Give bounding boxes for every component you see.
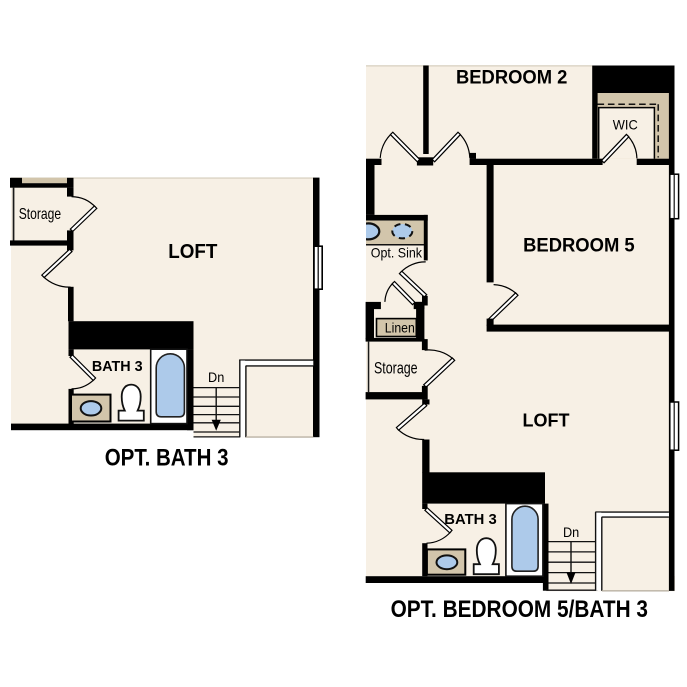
svg-text:OPT. BATH 3: OPT. BATH 3	[105, 444, 229, 471]
svg-text:Linen: Linen	[385, 321, 415, 336]
svg-text:BATH 3: BATH 3	[92, 358, 143, 375]
svg-text:LOFT: LOFT	[523, 410, 571, 431]
svg-text:Dn: Dn	[208, 370, 224, 385]
svg-text:BEDROOM 2: BEDROOM 2	[456, 68, 567, 89]
svg-text:Storage: Storage	[374, 358, 418, 377]
svg-text:WIC: WIC	[613, 117, 638, 133]
svg-text:Opt. Sink: Opt. Sink	[371, 244, 423, 260]
svg-text:Dn: Dn	[563, 525, 579, 540]
svg-text:BEDROOM 5: BEDROOM 5	[523, 236, 635, 257]
svg-text:OPT. BEDROOM 5/BATH 3: OPT. BEDROOM 5/BATH 3	[391, 596, 648, 623]
svg-text:LOFT: LOFT	[168, 241, 217, 263]
svg-text:BATH 3: BATH 3	[444, 511, 496, 528]
svg-text:Storage: Storage	[19, 206, 61, 223]
